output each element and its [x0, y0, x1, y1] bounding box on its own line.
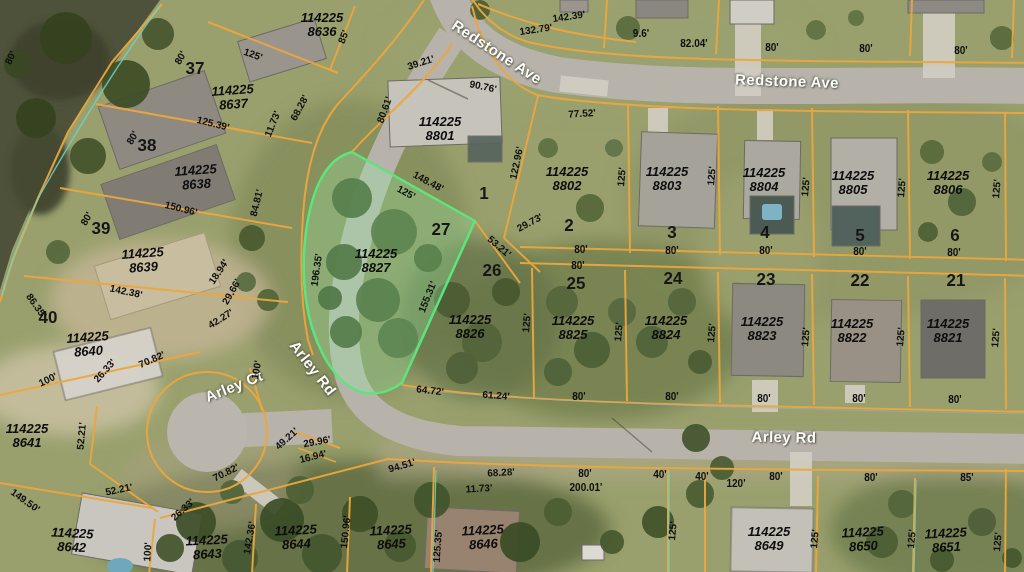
- dimension-label: 85': [960, 473, 974, 483]
- dimension-label: 80': [948, 395, 962, 405]
- dimension-label: 90.76': [469, 79, 498, 95]
- lot-number-label: 39: [92, 220, 111, 238]
- dimension-label: 142.36': [242, 521, 258, 555]
- parcel-id-label: 114225 8650: [841, 524, 885, 553]
- dimension-label: 80': [757, 394, 771, 404]
- lot-number-label: 37: [186, 60, 205, 78]
- dimension-label: 120': [726, 479, 745, 489]
- dimension-label: 125': [800, 177, 812, 197]
- parcel-id-label: 114225 8805: [832, 169, 874, 196]
- dimension-label: 142.38': [109, 283, 143, 300]
- parcel-id-label: 114225 8638: [174, 162, 218, 192]
- parcel-id-label: 114225 8803: [646, 165, 688, 192]
- parcel-id-label: 114225 8639: [121, 245, 165, 275]
- dimension-label: 26.33': [169, 497, 196, 523]
- parcel-id-label: 114225 8825: [552, 314, 594, 341]
- dimension-label: 52.21': [105, 482, 134, 498]
- dimension-label: 80': [765, 43, 779, 53]
- dimension-label: 80': [578, 469, 592, 479]
- parcel-id-label: 114225 8802: [546, 165, 588, 192]
- dimension-label: 9.6': [633, 29, 649, 39]
- dimension-label: 80': [572, 392, 586, 402]
- dimension-label: 155.31': [417, 280, 439, 314]
- dimension-label: 125': [521, 313, 533, 333]
- parcel-id-label: 114225 8823: [741, 315, 783, 342]
- lot-number-label: 3: [667, 224, 676, 242]
- dimension-label: 80': [759, 246, 773, 256]
- dimension-label: 149.50': [9, 487, 42, 514]
- dimension-label: 40': [653, 470, 667, 480]
- parcel-id-label: 114225 8643: [185, 532, 229, 561]
- dimension-label: 150.96': [164, 200, 199, 218]
- dimension-label: 86.35': [24, 292, 48, 320]
- parcel-id-label: 114225 8642: [50, 525, 94, 554]
- dimension-label: 142.39': [552, 10, 586, 25]
- dimension-label: 80': [947, 248, 961, 258]
- dimension-label: 53.21': [485, 234, 513, 260]
- dimension-label: 125': [990, 328, 1002, 348]
- dimension-label: 42.27': [207, 307, 236, 330]
- aerial-parcel-map[interactable]: 114225 8636114225 8637114225 8638114225 …: [0, 0, 1024, 572]
- street-name-label: Redstone Ave: [735, 71, 839, 90]
- dimension-label: 80': [859, 44, 873, 54]
- parcel-id-label: 114225 8640: [66, 329, 110, 359]
- dimension-label: 29.66': [221, 278, 244, 307]
- dimension-label: 132.79': [519, 23, 553, 38]
- dimension-label: 77.52': [568, 108, 596, 120]
- dimension-label: 122.96': [508, 146, 525, 180]
- dimension-label: 80': [769, 472, 783, 482]
- dimension-label: 80': [853, 247, 867, 257]
- parcel-id-label: 114225 8649: [748, 525, 790, 552]
- parcel-id-label: 114225 8822: [831, 317, 873, 344]
- dimension-label: 68.28': [487, 467, 515, 479]
- dimension-label: 148.48': [411, 170, 445, 195]
- parcel-id-label: 114225 8651: [924, 525, 968, 554]
- dimension-label: 125': [895, 327, 907, 347]
- dimension-label: 39.21': [406, 54, 435, 72]
- dimension-label: 70.82': [211, 462, 240, 483]
- dimension-label: 125': [991, 179, 1003, 199]
- dimension-label: 68.28': [289, 93, 311, 122]
- dimension-label: 82.04': [680, 39, 707, 49]
- dimension-label: 80': [954, 46, 968, 56]
- dimension-label: 52.21': [76, 422, 89, 450]
- dimension-label: 80': [125, 130, 141, 147]
- lot-number-label: 38: [138, 137, 157, 155]
- dimension-label: 80': [665, 392, 679, 402]
- dimension-label: 80': [864, 473, 878, 483]
- lot-number-label: 24: [664, 270, 683, 288]
- map-labels: 114225 8636114225 8637114225 8638114225 …: [0, 0, 1024, 572]
- dimension-label: 11.73': [263, 110, 283, 139]
- dimension-label: 125': [395, 184, 417, 202]
- lot-number-label: 21: [947, 272, 966, 290]
- dimension-label: 125': [613, 322, 625, 342]
- dimension-label: 29.73': [515, 212, 544, 234]
- dimension-label: 80': [79, 211, 95, 228]
- street-name-label: Redstone Ave: [449, 17, 544, 87]
- dimension-label: 200.01': [570, 483, 603, 493]
- lot-number-label: 22: [851, 272, 870, 290]
- dimension-label: 11.73': [465, 483, 492, 495]
- street-name-label: Arley Ct: [203, 367, 265, 404]
- lot-number-label: 23: [757, 271, 776, 289]
- lot-number-label: 25: [567, 275, 586, 293]
- dimension-label: 80': [571, 261, 585, 271]
- dimension-label: 125': [706, 323, 718, 343]
- lot-number-label: 26: [483, 262, 502, 280]
- dimension-label: 16.94': [298, 449, 327, 466]
- dimension-label: 80.61': [375, 95, 394, 124]
- lot-number-label: 40: [39, 309, 58, 327]
- dimension-label: 61.24': [482, 390, 510, 402]
- parcel-id-label: 114225 8806: [927, 169, 969, 196]
- dimension-label: 26.33': [92, 357, 118, 384]
- parcel-id-label: 114225 8827: [355, 247, 397, 274]
- lot-number-label: 27: [432, 221, 451, 239]
- dimension-label: 125': [242, 47, 263, 63]
- parcel-id-label: 114225 8641: [6, 422, 48, 449]
- parcel-id-label: 114225 8646: [461, 522, 505, 551]
- dimension-label: 125': [800, 327, 812, 347]
- dimension-label: 125': [667, 521, 679, 541]
- dimension-label: 85': [337, 29, 351, 45]
- parcel-id-label: 114225 8821: [927, 317, 969, 344]
- dimension-label: 80': [852, 394, 866, 404]
- parcel-id-label: 114225 8804: [743, 166, 785, 193]
- dimension-label: 18.94': [207, 258, 231, 287]
- dimension-label: 40': [695, 472, 709, 482]
- dimension-label: 125': [906, 529, 918, 549]
- dimension-label: 80': [574, 245, 588, 255]
- dimension-label: 29.96': [303, 435, 332, 450]
- lot-number-label: 1: [479, 185, 488, 203]
- street-name-label: Arley Rd: [287, 338, 339, 399]
- parcel-id-label: 114225 8636: [301, 11, 343, 38]
- lot-number-label: 2: [564, 217, 573, 235]
- dimension-label: 125.39': [196, 115, 231, 133]
- dimension-label: 64.72': [416, 384, 444, 397]
- dimension-label: 70.82': [137, 350, 166, 371]
- dimension-label: 125': [616, 167, 628, 187]
- lot-number-label: 4: [760, 224, 769, 242]
- dimension-label: 125': [896, 178, 908, 198]
- parcel-id-label: 114225 8637: [211, 82, 255, 112]
- dimension-label: 94.51': [387, 457, 416, 475]
- dimension-label: 150.96': [339, 515, 353, 549]
- dimension-label: 80': [665, 246, 679, 256]
- parcel-id-label: 114225 8824: [645, 314, 687, 341]
- dimension-label: 49.21': [273, 426, 300, 452]
- dimension-label: 125': [809, 529, 821, 549]
- dimension-label: 125': [992, 532, 1004, 552]
- parcel-id-label: 114225 8826: [449, 313, 491, 340]
- dimension-label: 125': [706, 166, 718, 186]
- parcel-id-label: 114225 8645: [369, 522, 413, 551]
- dimension-label: 80': [3, 50, 18, 67]
- dimension-label: 100': [142, 542, 154, 562]
- dimension-label: 100': [250, 360, 264, 381]
- parcel-id-label: 114225 8801: [419, 115, 461, 142]
- dimension-label: 125.35': [432, 529, 445, 563]
- parcel-id-label: 114225 8644: [274, 522, 318, 551]
- dimension-label: 100': [37, 371, 59, 389]
- lot-number-label: 5: [855, 227, 864, 245]
- lot-number-label: 6: [950, 227, 959, 245]
- dimension-label: 80': [173, 50, 189, 67]
- dimension-label: 196.35': [310, 253, 325, 287]
- street-name-label: Arley Rd: [751, 429, 816, 446]
- dimension-label: 84.81': [249, 188, 266, 217]
